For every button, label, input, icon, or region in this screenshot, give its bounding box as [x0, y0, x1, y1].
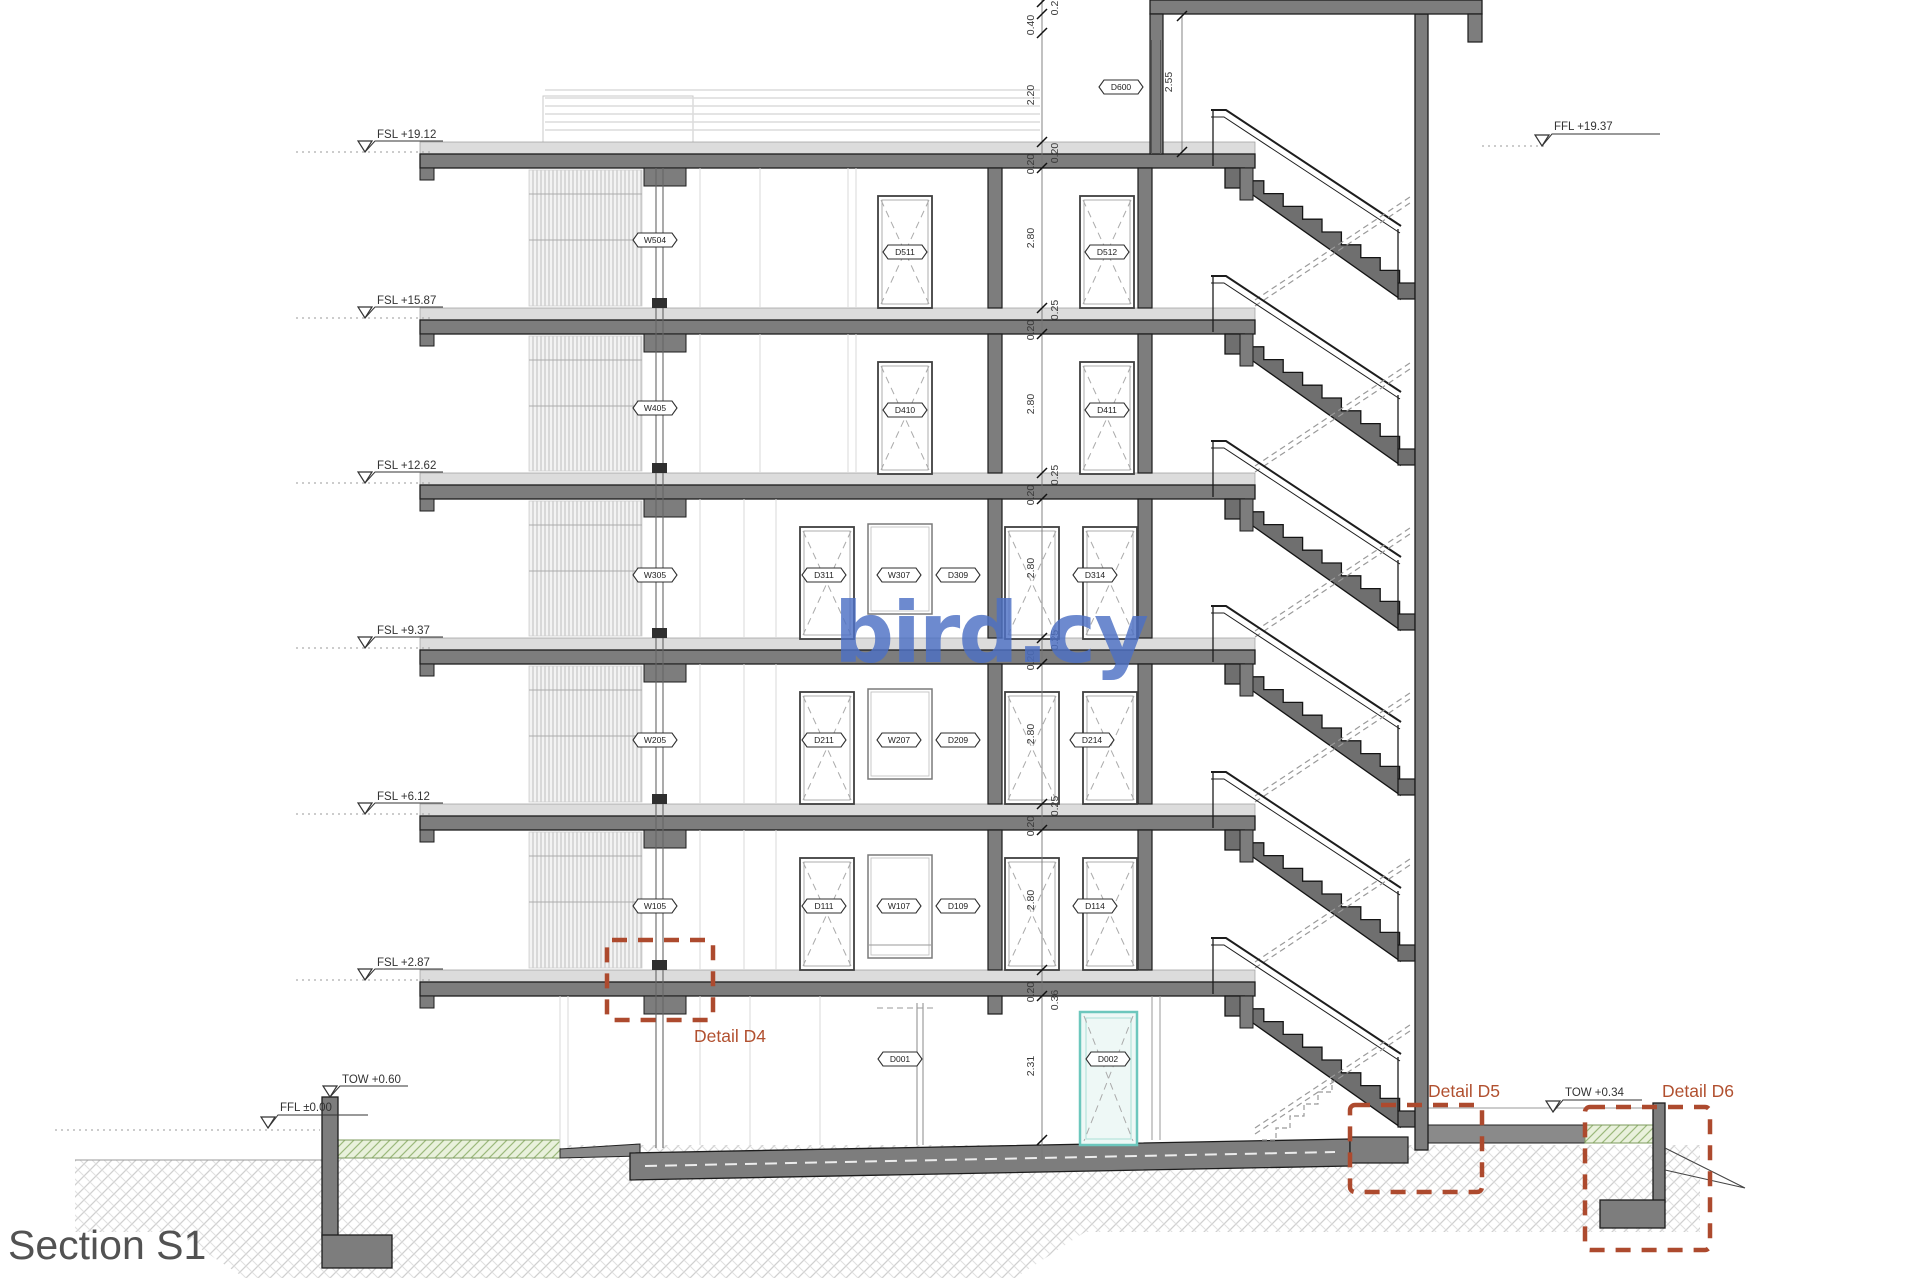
door-d001-edge [917, 1003, 923, 1145]
dim-2-80-f2: 2.80 [1025, 724, 1037, 745]
svg-text:W205: W205 [644, 735, 666, 745]
svg-text:D411: D411 [1097, 405, 1117, 415]
window-tag-W504: W504 [633, 233, 677, 247]
dim-2-80-f4: 2.80 [1025, 394, 1037, 415]
walkway-right [1428, 1108, 1653, 1125]
balcony-screens [529, 170, 642, 968]
door-tag-D214: D214 [1070, 733, 1114, 747]
door-tag-D114: D114 [1073, 899, 1117, 913]
door-d002-highlighted [1080, 1012, 1137, 1145]
fsl-roof-label: FSL +19.12 [377, 129, 436, 141]
svg-text:D209: D209 [948, 735, 969, 745]
detail-d6-label: Detail D6 [1662, 1081, 1734, 1101]
svg-text:W405: W405 [644, 403, 666, 413]
door-tag-D512: D512 [1085, 245, 1129, 259]
svg-text:D511: D511 [895, 247, 915, 257]
dim-0-25-f2: 0.25 [1049, 796, 1061, 817]
svg-text:W207: W207 [888, 735, 910, 745]
detail-d5-label: Detail D5 [1428, 1081, 1500, 1101]
door-tag-D411: D411 [1085, 403, 1129, 417]
dim-0-20-roof-l: 0.20 [1025, 154, 1037, 175]
door-tag-D002: D002 [1086, 1052, 1130, 1066]
svg-text:D111: D111 [814, 901, 833, 911]
svg-text:D600: D600 [1111, 82, 1132, 92]
dim-0-20-g: 0.20 [1025, 982, 1037, 1003]
dim-0-25-f4: 0.25 [1049, 465, 1061, 486]
ffl-stair-roof-label: FFL +19.37 [1554, 121, 1613, 133]
dim-0-20-roof-r: 0.20 [1049, 143, 1061, 164]
svg-text:D211: D211 [814, 735, 834, 745]
svg-text:D001: D001 [890, 1054, 911, 1064]
door-tag-D600: D600 [1099, 80, 1143, 94]
svg-text:W307: W307 [888, 570, 910, 580]
svg-text:D114: D114 [1085, 901, 1105, 911]
svg-text:D309: D309 [948, 570, 969, 580]
window-tag-W205: W205 [633, 733, 677, 747]
fsl-4-label: FSL +12.62 [377, 460, 436, 472]
dim-0-20-f4: 0.20 [1025, 485, 1037, 506]
dim-2-80-f1: 2.80 [1025, 890, 1037, 911]
dim-2-80-f3: 2.80 [1025, 558, 1037, 579]
fsl-2-label: FSL +6.12 [377, 791, 430, 803]
drawing-title: Section S1 [8, 1222, 206, 1269]
dim-2-80-f5: 2.80 [1025, 228, 1037, 249]
dim-0-2: 0.2 [1049, 1, 1061, 16]
hidden-stair-to-ground [1262, 1080, 1332, 1140]
tow-right-label: TOW +0.34 [1565, 1087, 1625, 1099]
svg-text:D512: D512 [1097, 247, 1118, 257]
door-tag-D410: D410 [883, 403, 927, 417]
dim-0-36-g: 0.36 [1049, 990, 1061, 1011]
window-tag-W105: W105 [633, 899, 677, 913]
green-strip-right [1585, 1125, 1653, 1143]
svg-text:D214: D214 [1082, 735, 1103, 745]
svg-text:D311: D311 [814, 570, 834, 580]
ffl-ground-level-marker: FFL ±0.00 [261, 1102, 368, 1128]
green-strip-left [338, 1140, 560, 1158]
window-tag-W405: W405 [633, 401, 677, 415]
tow-left-label: TOW +0.60 [342, 1074, 401, 1086]
svg-text:W305: W305 [644, 570, 666, 580]
fsl-1-label: FSL +2.87 [377, 957, 430, 969]
dim-0-20-f5: 0.20 [1025, 320, 1037, 341]
door-tag-D111: D111 [802, 899, 846, 913]
svg-text:D002: D002 [1098, 1054, 1119, 1064]
dim-2-20: 2.20 [1025, 85, 1037, 106]
window-tag-W307: W307 [877, 568, 921, 582]
tow-left-level-marker: TOW +0.60 [323, 1074, 408, 1097]
door-tag-D311: D311 [802, 568, 846, 582]
door-tag-D209: D209 [936, 733, 980, 747]
fsl-3-label: FSL +9.37 [377, 625, 430, 637]
window-tag-W107: W107 [877, 899, 921, 913]
footing-right-wall [1350, 1137, 1408, 1163]
retaining-wall-right [1653, 1103, 1665, 1202]
svg-text:D410: D410 [895, 405, 916, 415]
dim-0-40: 0.40 [1025, 15, 1037, 36]
svg-text:W504: W504 [644, 235, 666, 245]
dim-2-31: 2.31 [1025, 1056, 1037, 1077]
svg-text:W107: W107 [888, 901, 910, 911]
bird-cy-watermark: bird.cy [834, 584, 1147, 682]
door-tag-D109: D109 [936, 899, 980, 913]
fsl-5-label: FSL +15.87 [377, 295, 436, 307]
door-tag-D314: D314 [1073, 568, 1117, 582]
door-tag-D309: D309 [936, 568, 980, 582]
svg-text:D109: D109 [948, 901, 969, 911]
window-tag-W207: W207 [877, 733, 921, 747]
dim-2-55: 2.55 [1163, 72, 1175, 93]
ffl-stair-roof-level-marker: FFL +19.37 [1535, 121, 1660, 146]
svg-text:D314: D314 [1085, 570, 1106, 580]
svg-text:W105: W105 [644, 901, 666, 911]
dim-0-25-f5: 0.25 [1049, 300, 1061, 321]
right-exterior-wall [1415, 14, 1428, 1150]
door-tag-D211: D211 [802, 733, 846, 747]
retaining-wall-left [322, 1097, 338, 1237]
detail-d4-label: Detail D4 [694, 1026, 766, 1046]
window-tag-W305: W305 [633, 568, 677, 582]
section-drawing-canvas: FSL +19.12 FSL +15.87 FSL +12.62 FSL +9.… [0, 0, 1920, 1278]
door-tag-D001: D001 [878, 1052, 922, 1066]
ffl-ground-label: FFL ±0.00 [280, 1102, 332, 1114]
door-tag-D511: D511 [883, 245, 927, 259]
dim-0-20-f2: 0.20 [1025, 816, 1037, 837]
